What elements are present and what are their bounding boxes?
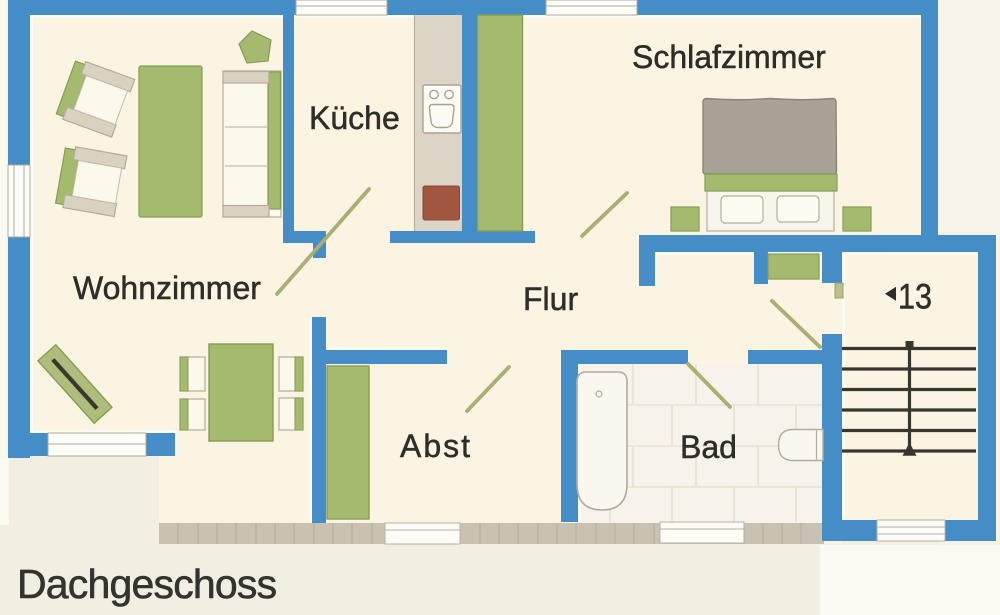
- svg-text:13: 13: [898, 277, 932, 317]
- svg-text:Küche: Küche: [309, 100, 400, 136]
- svg-text:Flur: Flur: [523, 281, 578, 317]
- svg-text:Dachgeschoss: Dachgeschoss: [17, 561, 277, 607]
- svg-text:Schlafzimmer: Schlafzimmer: [632, 39, 826, 75]
- svg-text:Wohnzimmer: Wohnzimmer: [73, 270, 261, 306]
- svg-text:Bad: Bad: [680, 429, 737, 465]
